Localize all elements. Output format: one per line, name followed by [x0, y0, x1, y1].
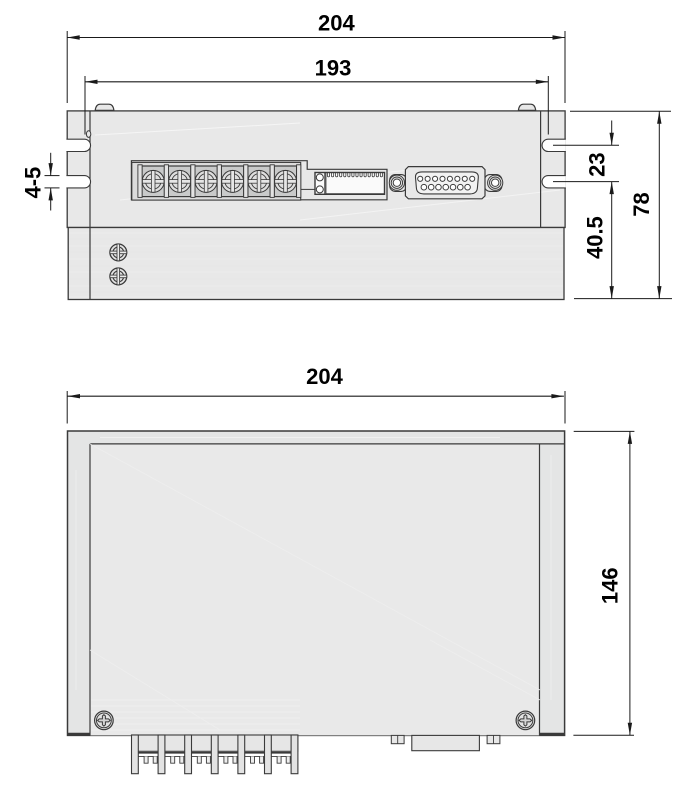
svg-text:23: 23 — [584, 152, 609, 176]
svg-text:193: 193 — [315, 55, 352, 80]
svg-text:40.5: 40.5 — [583, 216, 608, 259]
svg-text:146: 146 — [597, 567, 622, 604]
svg-text:78: 78 — [629, 192, 654, 216]
svg-text:204: 204 — [318, 11, 355, 36]
svg-text:4-5: 4-5 — [20, 167, 45, 199]
svg-text:204: 204 — [306, 364, 343, 389]
